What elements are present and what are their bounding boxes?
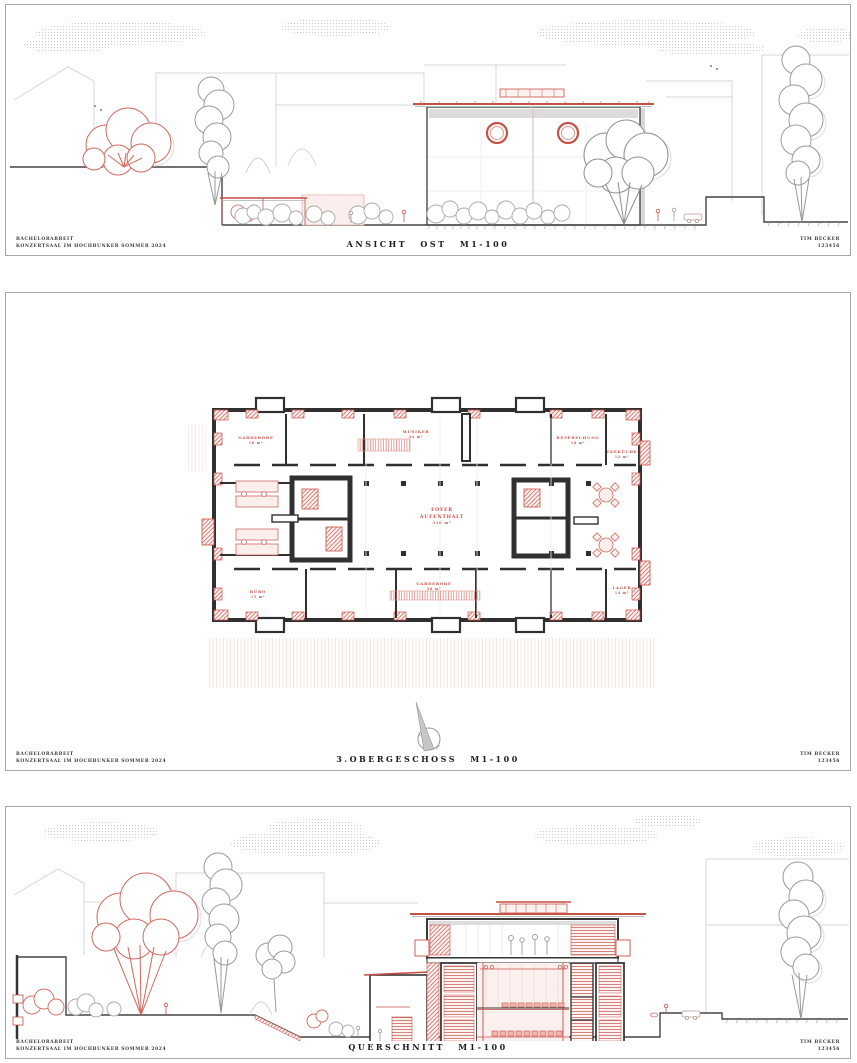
room-area: 16 m²: [249, 441, 263, 445]
project-line2: KONZERTSAAL IM HOCHBUNKER SOMMER 2024: [16, 1046, 166, 1053]
room-label: TEEKÜCHE: [607, 449, 638, 454]
red-tree: [92, 873, 201, 1015]
room-label: GARDEROBE: [416, 581, 451, 586]
author-id: 123456: [800, 758, 840, 765]
wardrobe-counter: [390, 591, 480, 600]
terrace-hatch: [209, 638, 656, 688]
room-label: FOYER: [431, 507, 453, 513]
floor-plan-sheet: FOYER AUFENTHALT 310 m² GARDEROBE 16 m² …: [5, 292, 851, 771]
gray-tree-tall: [779, 46, 826, 222]
section-sheet: QUERSCHNITT M1-100 BACHELORARBEIT KONZER…: [5, 806, 851, 1059]
floor-plan-drawing: FOYER AUFENTHALT 310 m² GARDEROBE 16 m² …: [6, 293, 850, 753]
project-line2: KONZERTSAAL IM HOCHBUNKER SOMMER 2024: [16, 243, 166, 250]
stage-furniture: [358, 439, 410, 451]
drawing-sheet-set: { "panels": [ {"title": "ANSICHT OST M1-…: [0, 0, 857, 1063]
round-window: [558, 123, 578, 143]
author-name: TIM BECKER: [800, 236, 840, 243]
author-id: 123456: [800, 1046, 840, 1053]
room-area: 12 m²: [615, 455, 629, 459]
room-label: AUFENTHALT: [419, 514, 464, 520]
room-label: GARDEROBE: [238, 435, 273, 440]
author-name: TIM BECKER: [800, 1039, 840, 1046]
section-drawing: [6, 807, 850, 1041]
bench: [272, 515, 298, 522]
gray-tree: [202, 853, 242, 1013]
car: [684, 214, 702, 223]
project-info: BACHELORARBEIT KONZERTSAAL IM HOCHBUNKER…: [16, 1039, 166, 1053]
room-area: 15 m²: [251, 595, 265, 599]
red-tree: [83, 108, 174, 175]
car: [682, 1011, 700, 1020]
concert-hall-section: [410, 902, 646, 1041]
shrub-arch: [246, 158, 270, 173]
room-label: LAGER: [613, 585, 632, 590]
project-info: BACHELORARBEIT KONZERTSAAL IM HOCHBUNKER…: [16, 236, 166, 250]
stair-core-left: [292, 478, 350, 560]
elevation-sheet: ANSICHT OST M1-100 BACHELORARBEIT KONZER…: [5, 4, 851, 256]
bushes: [23, 989, 354, 1037]
project-line2: KONZERTSAAL IM HOCHBUNKER SOMMER 2024: [16, 758, 166, 765]
gray-tree: [195, 77, 234, 205]
red-ramp: [255, 1015, 300, 1041]
clouds: [43, 814, 844, 857]
left-section-wall: [13, 955, 23, 1039]
room-label: BESPRECHUNG: [556, 435, 599, 440]
room-area: 14 m²: [615, 591, 629, 595]
annex-section: [364, 972, 429, 1041]
project-line1: BACHELORARBEIT: [16, 1039, 166, 1046]
room-label: BÜRO: [250, 589, 266, 594]
author-info: TIM BECKER 123456: [800, 1039, 840, 1053]
balcony-hatch: [185, 425, 209, 471]
clouds: [23, 18, 850, 56]
elevation-drawing: [6, 5, 850, 237]
roof-line: [413, 89, 654, 107]
room-label: 310 m²: [433, 521, 452, 525]
author-name: TIM BECKER: [800, 751, 840, 758]
room-label: MUSIKER: [403, 429, 430, 434]
gray-tree-tall: [779, 862, 826, 1019]
author-info: TIM BECKER 123456: [800, 236, 840, 250]
stair-core-right: [514, 480, 568, 556]
room-area: 18 m²: [571, 441, 585, 445]
bench: [574, 517, 598, 524]
gray-tree-small: [256, 935, 295, 1012]
room-area: 24 m²: [409, 435, 423, 439]
author-info: TIM BECKER 123456: [800, 751, 840, 765]
project-line1: BACHELORARBEIT: [16, 236, 166, 243]
room-area: 28 m²: [427, 587, 441, 591]
project-line1: BACHELORARBEIT: [16, 751, 166, 758]
author-id: 123456: [800, 243, 840, 250]
project-info: BACHELORARBEIT KONZERTSAAL IM HOCHBUNKER…: [16, 751, 166, 765]
north-arrow-icon: [416, 702, 440, 751]
figures: [651, 1004, 668, 1017]
round-window: [487, 123, 507, 143]
